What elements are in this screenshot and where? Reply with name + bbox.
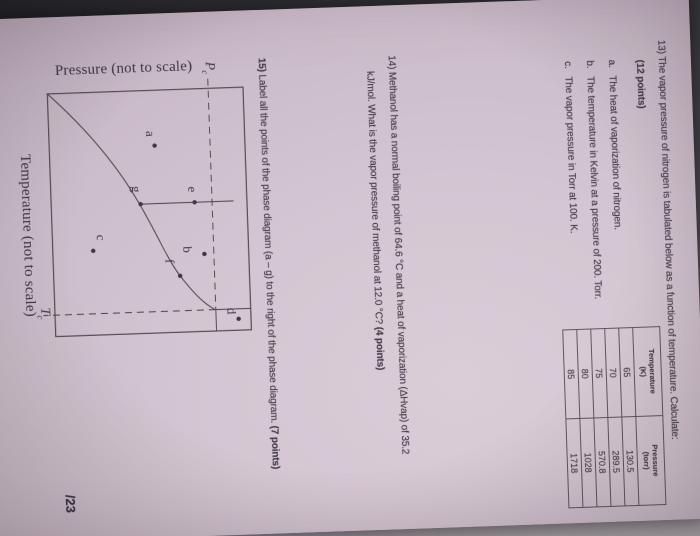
item-a-text: The heat of vaporization of nitrogen. [606, 75, 622, 230]
question-14-points: (4 points) [373, 327, 386, 371]
point-a-dot [152, 143, 157, 148]
score-total: /23 [63, 495, 79, 514]
supercritical-box-horizontal [216, 310, 217, 332]
point-e-dot [192, 200, 197, 205]
point-d-label: d [224, 308, 239, 316]
point-c-dot [91, 249, 96, 254]
temperature-column-header: Temperature (K) [633, 327, 663, 417]
pressure-axis-label: Pressure (not to scale) [55, 58, 193, 80]
question-13-item-a: a. The heat of vaporization of nitrogen. [606, 59, 623, 230]
question-15-points: (7 points) [268, 425, 281, 469]
critical-temperature-label: Tc [35, 307, 52, 319]
item-b-text: The temperature in Kelvin at a pressure … [584, 76, 603, 299]
question-15-number: 15) [256, 58, 267, 72]
item-c-letter: c. [562, 61, 573, 69]
point-b-label: b [180, 246, 195, 253]
tc-dashed-line [43, 310, 215, 316]
point-b-dot [202, 252, 207, 257]
temperature-axis-label: Temperature (not to scale) [16, 154, 39, 317]
worksheet-page: 13) The vapor pressure of nitrogen is ta… [0, 0, 700, 536]
question-13-item-c: c. The vapor pressure in Torr at 100. K. [562, 61, 579, 234]
pc-dashed-line [208, 79, 216, 310]
vaporization-curve [47, 88, 216, 315]
fusion-line [140, 201, 234, 204]
phase-diagram-border [47, 87, 251, 336]
vapor-pressure-table: Temperature (K) Pressure (torr) 65130.57… [562, 326, 666, 508]
question-14-line1: 14) Methanol has a normal boiling point … [386, 55, 411, 454]
point-c-label: c [94, 234, 109, 241]
point-f-label: f [163, 259, 178, 265]
phase-diagram: abcdefg [47, 86, 252, 337]
point-e-label: e [185, 186, 200, 193]
point-d-dot [236, 317, 241, 322]
pressure-column-header: Pressure (torr) [636, 416, 666, 506]
item-b-letter: b. [584, 60, 595, 68]
question-13-points: (12 points) [634, 59, 647, 108]
question-13-item-b: b. The temperature in Kelvin at a pressu… [584, 60, 603, 299]
point-g-label: g [129, 186, 144, 194]
question-15-text: 15) Label all the points of the phase di… [256, 58, 281, 470]
point-a-label: a [143, 131, 158, 138]
item-a-letter: a. [606, 59, 617, 67]
photo-of-worksheet: 13) The vapor pressure of nitrogen is ta… [0, 0, 700, 536]
critical-pressure-label: Pc [200, 61, 217, 74]
question-14-line2: kJ/mol. What is the vapor pressure of me… [364, 71, 385, 371]
item-c-text: The vapor pressure in Torr at 100. K. [562, 76, 578, 233]
